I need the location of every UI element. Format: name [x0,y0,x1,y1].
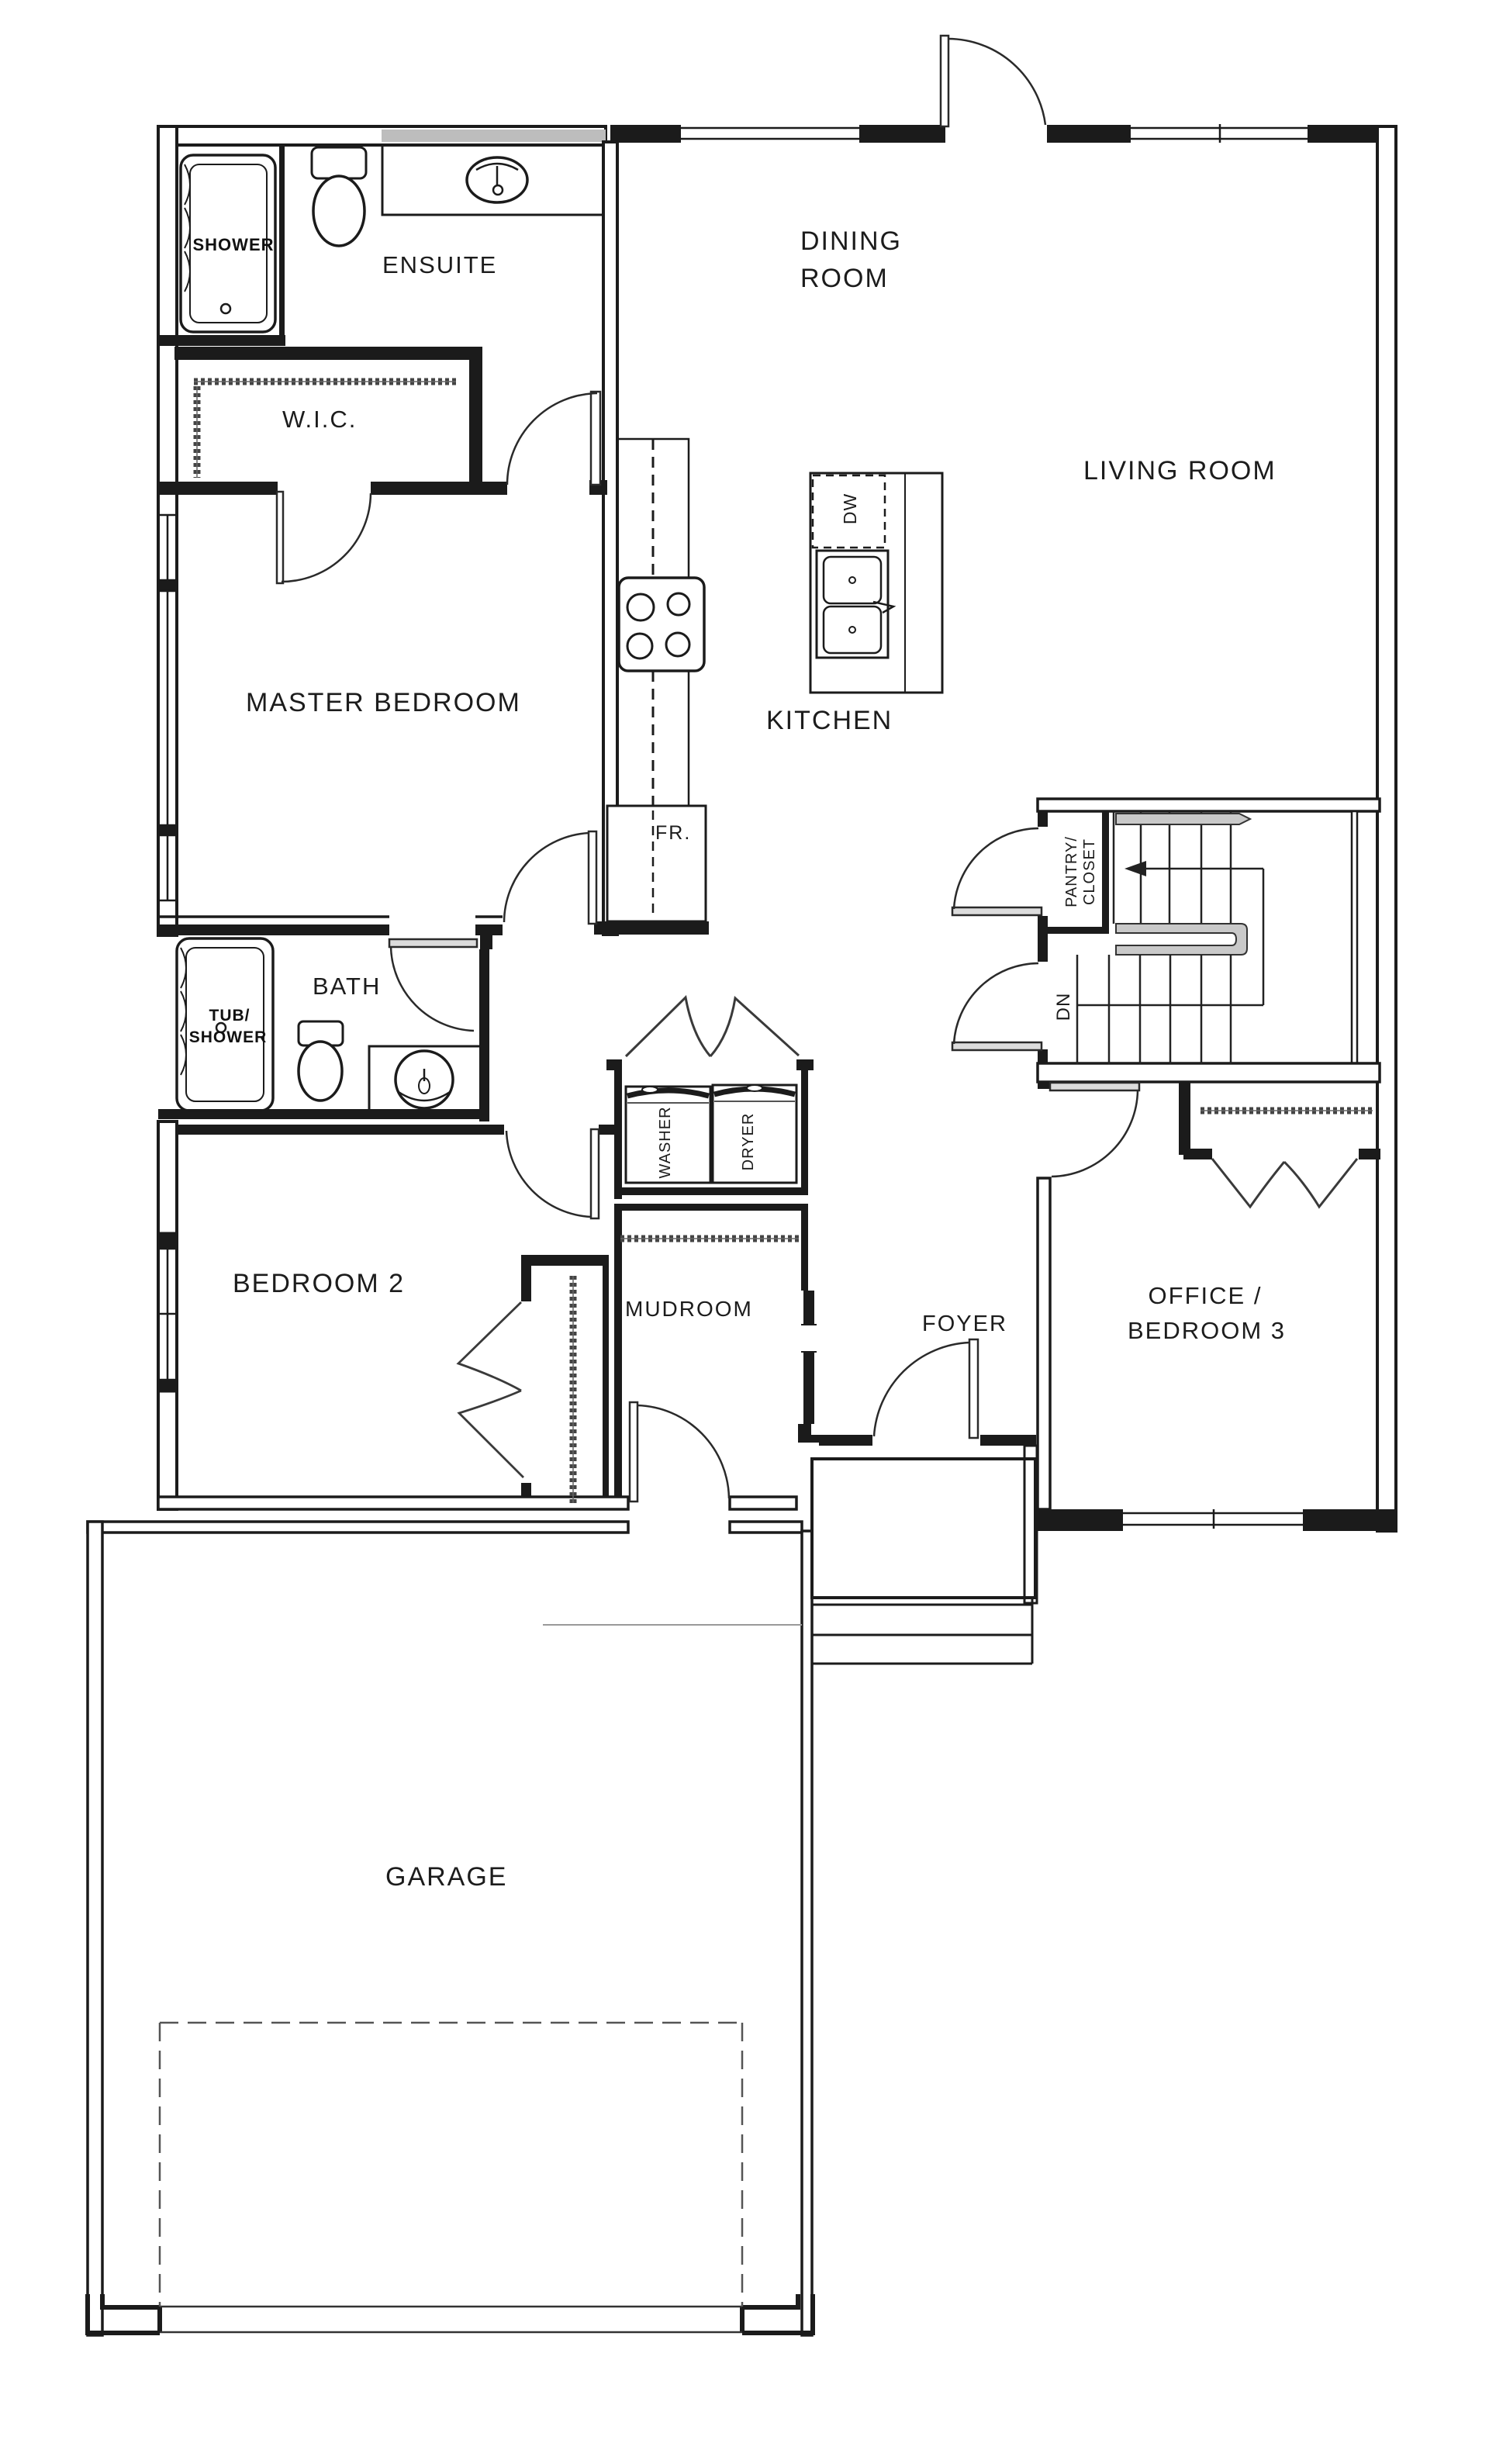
svg-text:OFFICE /: OFFICE / [1149,1282,1263,1309]
svg-text:SHOWER: SHOWER [189,1028,268,1046]
svg-text:CLOSET: CLOSET [1081,838,1098,905]
svg-text:WASHER: WASHER [657,1106,674,1178]
svg-text:SHOWER: SHOWER [193,235,275,254]
svg-text:DINING: DINING [800,226,902,256]
svg-text:PANTRY/: PANTRY/ [1063,836,1080,907]
svg-text:LIVING ROOM: LIVING ROOM [1083,456,1277,486]
svg-text:FR.: FR. [655,822,691,844]
svg-text:ENSUITE: ENSUITE [382,251,497,278]
svg-text:GARAGE: GARAGE [385,1862,507,1892]
svg-text:MUDROOM: MUDROOM [625,1297,753,1321]
svg-text:BEDROOM 3: BEDROOM 3 [1128,1317,1286,1344]
svg-text:BEDROOM 2: BEDROOM 2 [233,1269,405,1298]
svg-text:ROOM: ROOM [800,264,889,293]
svg-text:BATH: BATH [313,973,381,1000]
svg-text:DW: DW [840,493,860,524]
svg-text:W.I.C.: W.I.C. [282,406,357,433]
svg-text:DN: DN [1053,993,1074,1021]
svg-text:DRYER: DRYER [740,1113,757,1171]
svg-text:MASTER BEDROOM: MASTER BEDROOM [246,688,521,717]
svg-text:TUB/: TUB/ [209,1007,250,1025]
svg-text:FOYER: FOYER [922,1311,1007,1336]
svg-text:KITCHEN: KITCHEN [766,706,893,735]
